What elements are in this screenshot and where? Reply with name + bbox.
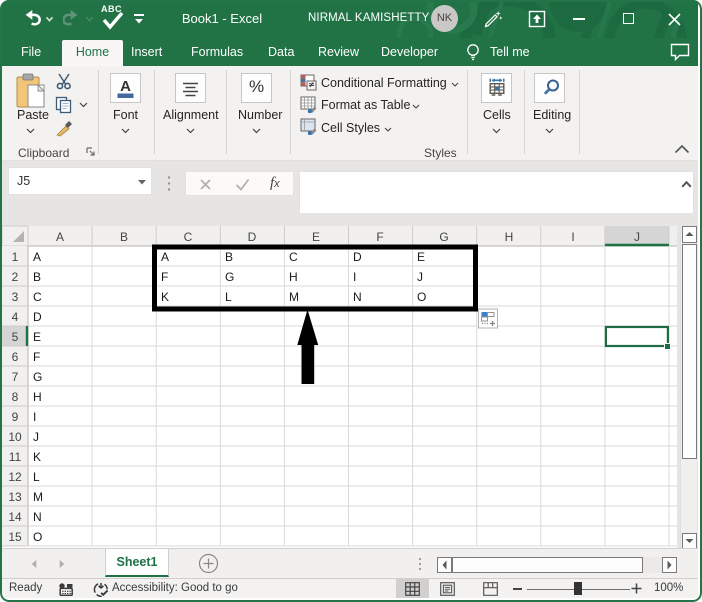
svg-text:11: 11 bbox=[9, 450, 22, 464]
svg-text:B: B bbox=[225, 250, 233, 264]
svg-text:I: I bbox=[33, 410, 36, 424]
svg-text:G: G bbox=[439, 230, 448, 244]
svg-text:G: G bbox=[33, 370, 42, 384]
svg-text:J: J bbox=[33, 430, 39, 444]
svg-text:K: K bbox=[33, 450, 41, 464]
svg-text:E: E bbox=[33, 330, 41, 344]
svg-text:5: 5 bbox=[12, 330, 19, 344]
svg-text:F: F bbox=[161, 270, 168, 284]
svg-text:L: L bbox=[33, 470, 40, 484]
svg-text:M: M bbox=[289, 290, 299, 304]
svg-text:O: O bbox=[417, 290, 426, 304]
svg-text:1: 1 bbox=[12, 250, 19, 264]
svg-text:7: 7 bbox=[12, 370, 19, 384]
svg-text:12: 12 bbox=[8, 470, 22, 484]
svg-text:N: N bbox=[33, 510, 42, 524]
svg-text:I: I bbox=[571, 230, 574, 244]
svg-text:6: 6 bbox=[12, 350, 19, 364]
svg-text:N: N bbox=[353, 290, 362, 304]
svg-text:3: 3 bbox=[12, 290, 19, 304]
svg-text:B: B bbox=[33, 270, 41, 284]
svg-text:E: E bbox=[312, 230, 320, 244]
svg-text:C: C bbox=[184, 230, 193, 244]
svg-text:A: A bbox=[56, 230, 64, 244]
svg-text:13: 13 bbox=[8, 490, 22, 504]
svg-text:14: 14 bbox=[8, 510, 22, 524]
svg-text:15: 15 bbox=[8, 530, 22, 544]
svg-text:J: J bbox=[417, 270, 423, 284]
svg-text:B: B bbox=[120, 230, 128, 244]
svg-text:K: K bbox=[161, 290, 169, 304]
svg-text:L: L bbox=[225, 290, 232, 304]
svg-text:8: 8 bbox=[12, 390, 19, 404]
svg-text:H: H bbox=[33, 390, 42, 404]
svg-text:4: 4 bbox=[12, 310, 19, 324]
svg-text:10: 10 bbox=[8, 430, 22, 444]
svg-text:C: C bbox=[289, 250, 298, 264]
svg-text:G: G bbox=[225, 270, 234, 284]
svg-text:J: J bbox=[634, 230, 640, 244]
svg-text:I: I bbox=[353, 270, 356, 284]
svg-text:D: D bbox=[248, 230, 257, 244]
svg-text:D: D bbox=[33, 310, 42, 324]
svg-text:H: H bbox=[289, 270, 298, 284]
svg-text:M: M bbox=[33, 490, 43, 504]
svg-text:A: A bbox=[33, 250, 41, 264]
svg-text:9: 9 bbox=[12, 410, 19, 424]
svg-text:H: H bbox=[505, 230, 514, 244]
svg-text:D: D bbox=[353, 250, 362, 264]
svg-text:A: A bbox=[161, 250, 169, 264]
svg-text:E: E bbox=[417, 250, 425, 264]
svg-text:O: O bbox=[33, 530, 42, 544]
svg-text:F: F bbox=[33, 350, 40, 364]
svg-text:2: 2 bbox=[12, 270, 19, 284]
svg-text:C: C bbox=[33, 290, 42, 304]
svg-text:F: F bbox=[376, 230, 383, 244]
svg-text:A: A bbox=[120, 78, 131, 95]
